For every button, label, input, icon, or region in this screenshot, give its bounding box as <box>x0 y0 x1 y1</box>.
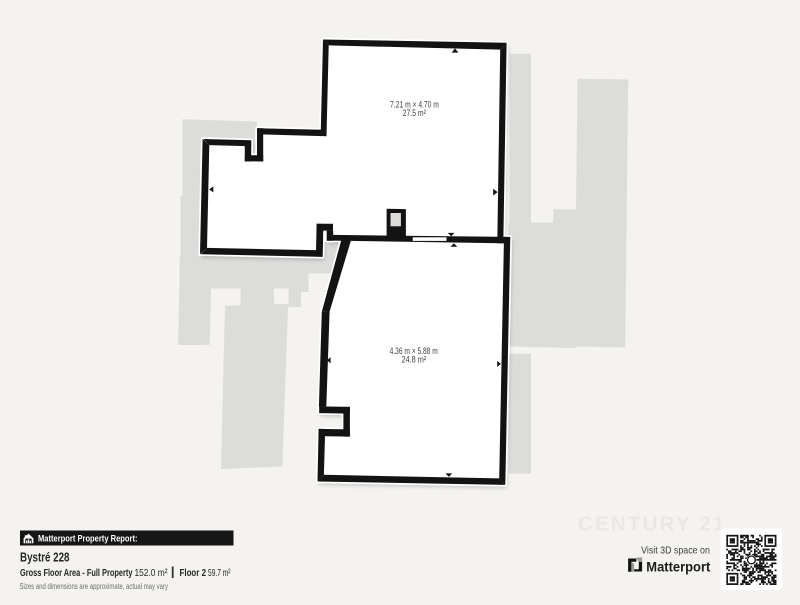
svg-text:Matterport Property Report:: Matterport Property Report: <box>38 534 138 544</box>
svg-text:Matterport: Matterport <box>646 559 710 574</box>
svg-text:Floor 259.7 m²: Floor 259.7 m² <box>180 568 231 579</box>
svg-text:24.8 m²: 24.8 m² <box>401 354 426 364</box>
svg-text:27.5 m²: 27.5 m² <box>403 108 426 118</box>
svg-text:Bystré 228: Bystré 228 <box>20 549 70 564</box>
svg-text:Visit 3D space on: Visit 3D space on <box>641 546 710 557</box>
svg-text:CENTURY 21: CENTURY 21 <box>578 513 726 536</box>
svg-text:Sizes and dimensions are appro: Sizes and dimensions are approximate, ac… <box>20 582 169 591</box>
svg-text:Gross Floor Area - Full Proper: Gross Floor Area - Full Property152.0 m² <box>20 568 168 579</box>
